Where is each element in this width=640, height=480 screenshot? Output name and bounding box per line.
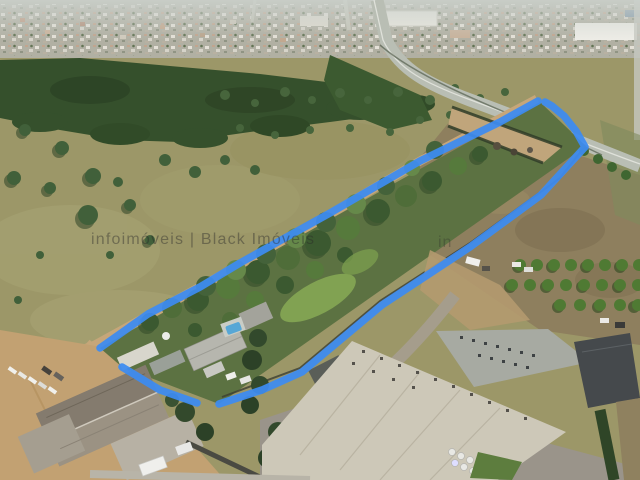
water-tower	[162, 332, 170, 340]
aerial-photo-canvas	[0, 0, 640, 480]
horizon-haze	[0, 0, 640, 40]
aerial-photo: infoimóveis | Black Imóveis in	[0, 0, 640, 480]
